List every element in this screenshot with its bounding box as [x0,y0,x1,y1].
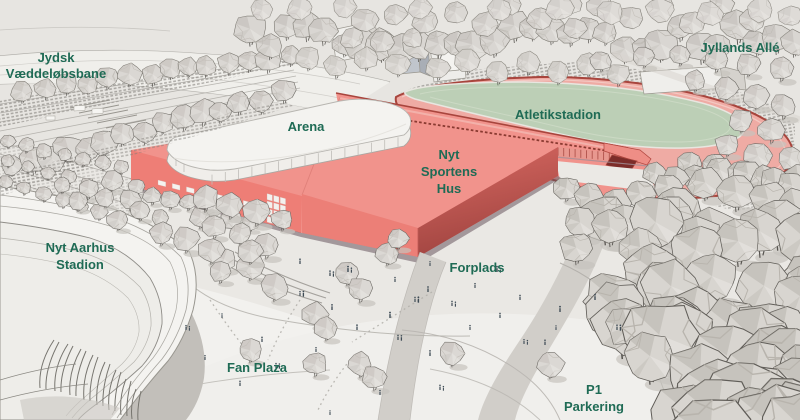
svg-text:Nyt: Nyt [439,147,461,162]
svg-text:Sportens: Sportens [421,164,477,179]
svg-text:Jyllands Allé: Jyllands Allé [701,40,780,55]
svg-text:Forplads: Forplads [450,260,505,275]
svg-text:Væddeløbsbane: Væddeløbsbane [6,66,106,81]
svg-text:Hus: Hus [437,181,462,196]
svg-text:P1: P1 [586,382,602,397]
svg-text:Parkering: Parkering [564,399,624,414]
svg-text:Jydsk: Jydsk [38,50,76,65]
svg-text:Stadion: Stadion [56,257,104,272]
svg-text:Nyt Aarhus: Nyt Aarhus [46,240,115,255]
svg-text:Arena: Arena [288,119,326,134]
svg-text:Fan Plaza: Fan Plaza [227,360,288,375]
svg-text:Atletikstadion: Atletikstadion [515,107,601,122]
